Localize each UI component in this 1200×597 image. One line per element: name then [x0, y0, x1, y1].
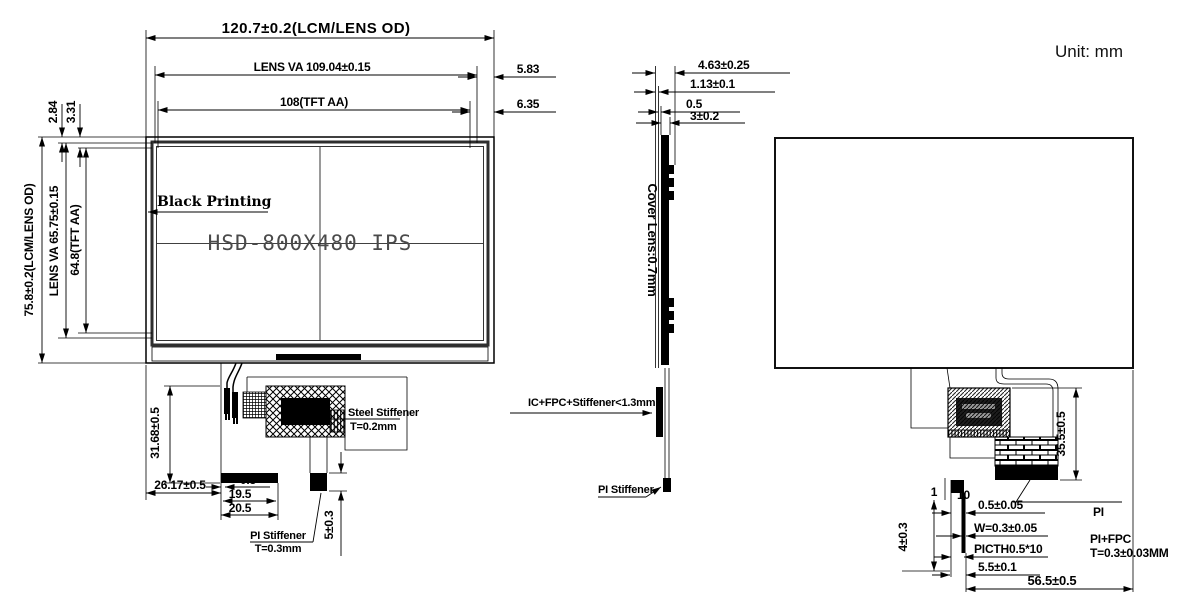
fpc-grid-area [243, 392, 266, 418]
dim-width-lens-va-text: LENS VA 109.04±0.15 [254, 60, 371, 74]
rear-fpc-outline-left [911, 368, 950, 428]
steel-stiffener-label: Steel Stiffener [348, 407, 420, 419]
side-lcd-stack [661, 135, 669, 365]
dim-fpc-left-offset-text: 26.17±0.5 [154, 478, 206, 492]
front-top-dimensions: 120.7±0.2(LCM/LENS OD) LENS VA 109.04±0.… [146, 20, 556, 148]
wire-connector-1 [224, 388, 230, 414]
dim-top-offset-va: 2.84 [46, 100, 62, 162]
fpc-tail-stiffener [310, 473, 327, 491]
cover-lens-label: Cover Lens:0.7mm [645, 183, 660, 296]
dim-height-tft-aa: 64.8(TFT AA) [68, 148, 86, 333]
dim-module-thickness: 3±0.2 [636, 109, 745, 123]
side-pi-label: PI Stiffener [598, 484, 655, 496]
side-pi-callout: PI Stiffener [598, 484, 661, 497]
dim-height-lens-va: LENS VA 65.75±0.15 [47, 143, 66, 338]
side-view: Cover Lens:0.7mm 4.63±0.25 1.13±0.1 0.5 … [510, 58, 790, 497]
dim-lens-thickness-text: 1.13±0.1 [690, 77, 736, 91]
drawing-svg: Black Printing HSD-800X480 IPS 120.7±0.2… [0, 0, 1200, 597]
rear-outline [775, 138, 1133, 368]
front-fpc: Steel Stiffener T=0.2mm 31.68±0.5 26.17±… [146, 363, 420, 556]
side-pi-stiffener [663, 478, 671, 492]
dim-right-offset-va-text: 5.83 [517, 62, 540, 76]
front-view: Black Printing HSD-800X480 IPS [146, 137, 494, 363]
dim-tail-length-text: 4±0.3 [896, 522, 910, 551]
side-ic-stiffener [656, 387, 663, 437]
pi-stiffener-label: PI Stiffener [250, 530, 307, 542]
black-printing-label: Black Printing [157, 194, 272, 210]
dim-tail-height: 5±0.3 [322, 452, 347, 556]
dim-tail-height-text: 5±0.3 [322, 510, 336, 539]
dim-fpc-height: 31.68±0.5 [148, 386, 220, 483]
dim-line-width-text: W=0.3±0.05 [974, 521, 1037, 535]
label-pi-fpc: PI+FPC [1090, 532, 1132, 546]
dim-gap: 0.5 [638, 97, 740, 112]
dim-top-offset-va-text: 2.84 [46, 100, 60, 123]
panel-model-text: HSD-800X480 IPS [208, 231, 413, 255]
dim-fpc-offset-text: 56.5±0.5 [1028, 573, 1077, 588]
rear-fpc-outline-mid [950, 437, 995, 466]
dim-height-od: 75.8±0.2(LCM/LENS OD) [22, 137, 42, 363]
dim-contact-inner: 19.5 [223, 487, 276, 501]
dim-rear-fpc-height-text: 35.5±0.5 [1054, 411, 1068, 457]
label-pi-fpc-thickness: T=0.3±0.03MM [1090, 546, 1169, 560]
dim-width-tft-aa-text: 108(TFT AA) [280, 95, 348, 109]
dim-width-lens-va: LENS VA 109.04±0.15 [155, 60, 477, 75]
pi-stiffener-callout: PI Stiffener T=0.3mm [250, 493, 321, 555]
wire-connector-2 [232, 392, 238, 418]
rear-fpc-black-bar [995, 466, 1058, 480]
dim-line-width: W=0.3±0.05 [936, 521, 1048, 536]
front-left-dimensions: 75.8±0.2(LCM/LENS OD) LENS VA 65.75±0.15… [22, 100, 152, 363]
dim-height-od-text: 75.8±0.2(LCM/LENS OD) [22, 183, 36, 316]
dim-contact-inner-text: 19.5 [229, 487, 252, 501]
pi-stiffener-thickness: T=0.3mm [255, 543, 302, 555]
dim-contact-outer-text: 20.5 [229, 501, 252, 515]
dim-width-od: 120.7±0.2(LCM/LENS OD) [146, 20, 494, 38]
dim-fpc-height-text: 31.68±0.5 [148, 407, 162, 459]
dim-width-tft-aa: 108(TFT AA) [158, 95, 470, 110]
dim-contact-outer: 20.5 [221, 501, 278, 515]
dim-pin-count-text: 10 [957, 488, 970, 502]
rear-fpc-brick-area [995, 437, 1058, 466]
unit-label: Unit: mm [1055, 42, 1123, 61]
ic-label: IC+FPC+Stiffener<1.3mm [528, 397, 656, 409]
dim-contact-width-text: 0.5±0.05 [978, 498, 1024, 512]
rear-connector-pins [948, 430, 1010, 437]
dim-height-lens-va-text: LENS VA 65.75±0.15 [47, 185, 61, 296]
dim-tail-gap-text: 1 [931, 485, 938, 499]
dim-right-offset-aa-text: 6.35 [517, 97, 540, 111]
rear-view: 35.5±0.5 1 10 4±0.3 0.5±0.05 W=0.3±0.05 [775, 138, 1169, 592]
dim-tail-length: 4±0.3 [896, 500, 950, 571]
dim-contact-width: 0.5±0.05 [932, 498, 1045, 513]
dim-tail-width-text: 5.5±0.1 [978, 560, 1017, 574]
dim-top-offset-aa-text: 3.31 [64, 100, 78, 123]
front-bottom-bar [276, 354, 361, 360]
ic-callout: IC+FPC+Stiffener<1.3mm [510, 397, 656, 413]
steel-stiffener-thickness: T=0.2mm [350, 421, 397, 433]
dim-width-od-text: 120.7±0.2(LCM/LENS OD) [222, 20, 411, 37]
mechanical-drawing: Black Printing HSD-800X480 IPS 120.7±0.2… [0, 0, 1200, 597]
dim-contact-margin-text: 0.5 [240, 473, 257, 487]
backlight-wire-1 [227, 363, 236, 392]
dim-pitch-text: PICTH0.5*10 [974, 542, 1043, 556]
label-pi: PI [1093, 505, 1104, 519]
dim-module-thickness-text: 3±0.2 [690, 109, 719, 123]
dim-tail-width: 5.5±0.1 [932, 560, 1040, 575]
steel-stiffener-hatch [330, 410, 344, 432]
dim-total-thickness-text: 4.63±0.25 [698, 58, 750, 72]
dim-height-tft-aa-text: 64.8(TFT AA) [68, 204, 82, 275]
